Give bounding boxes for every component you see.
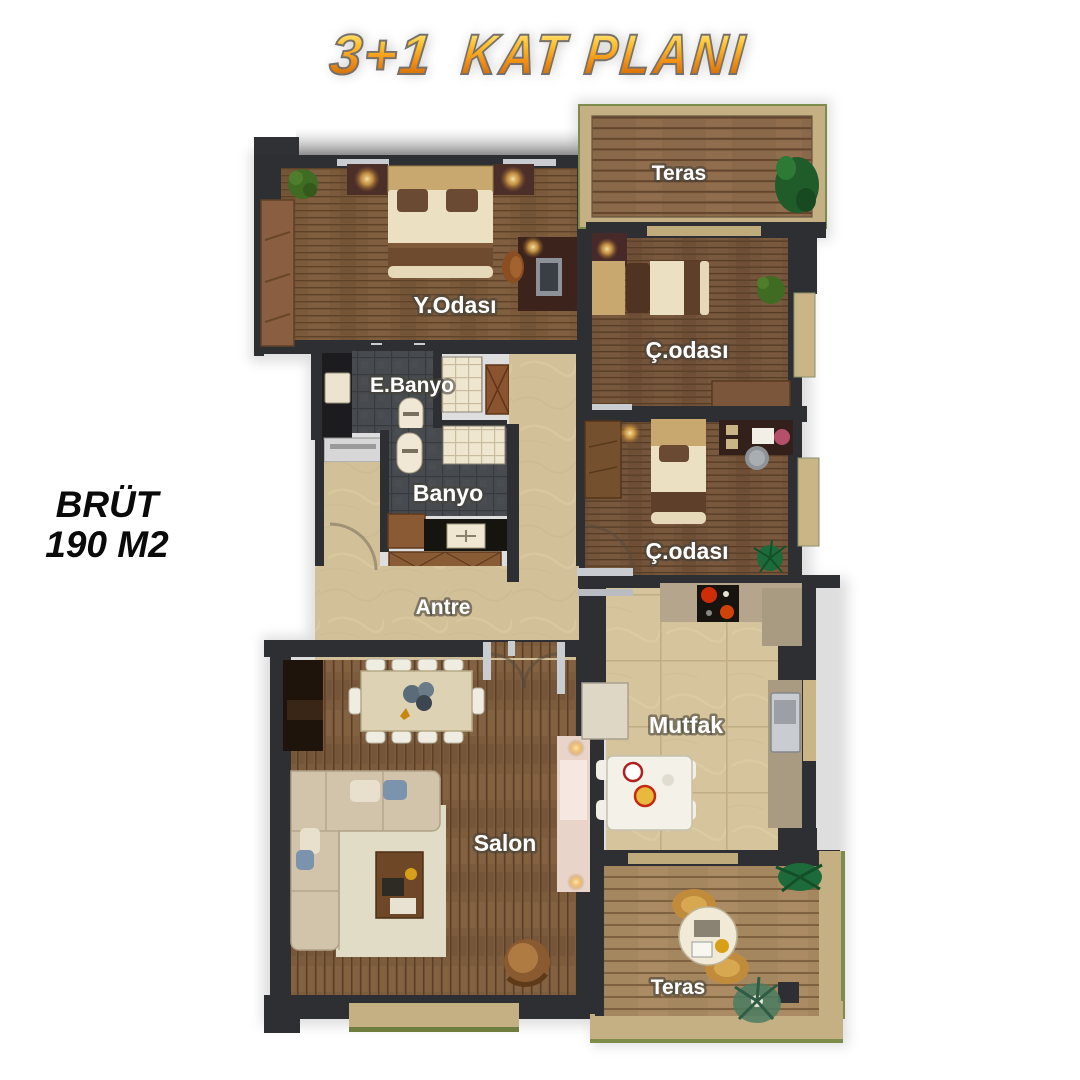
svg-text:KAT PLANI: KAT PLANI: [459, 23, 751, 87]
svg-text:BRÜT: BRÜT: [56, 484, 162, 525]
svg-text:Ç.odası: Ç.odası: [645, 337, 728, 363]
svg-text:Teras: Teras: [651, 976, 705, 999]
svg-text:Y.Odası: Y.Odası: [413, 292, 496, 318]
svg-text:3+1: 3+1: [327, 23, 436, 87]
svg-text:E.Banyo: E.Banyo: [370, 374, 454, 397]
svg-text:Antre: Antre: [416, 596, 471, 619]
svg-text:Teras: Teras: [652, 162, 706, 185]
svg-text:190 M2: 190 M2: [45, 524, 169, 565]
svg-text:Mutfak: Mutfak: [649, 712, 723, 738]
svg-text:Ç.odası: Ç.odası: [645, 538, 728, 564]
svg-text:Banyo: Banyo: [413, 480, 483, 506]
svg-text:Salon: Salon: [474, 830, 537, 856]
